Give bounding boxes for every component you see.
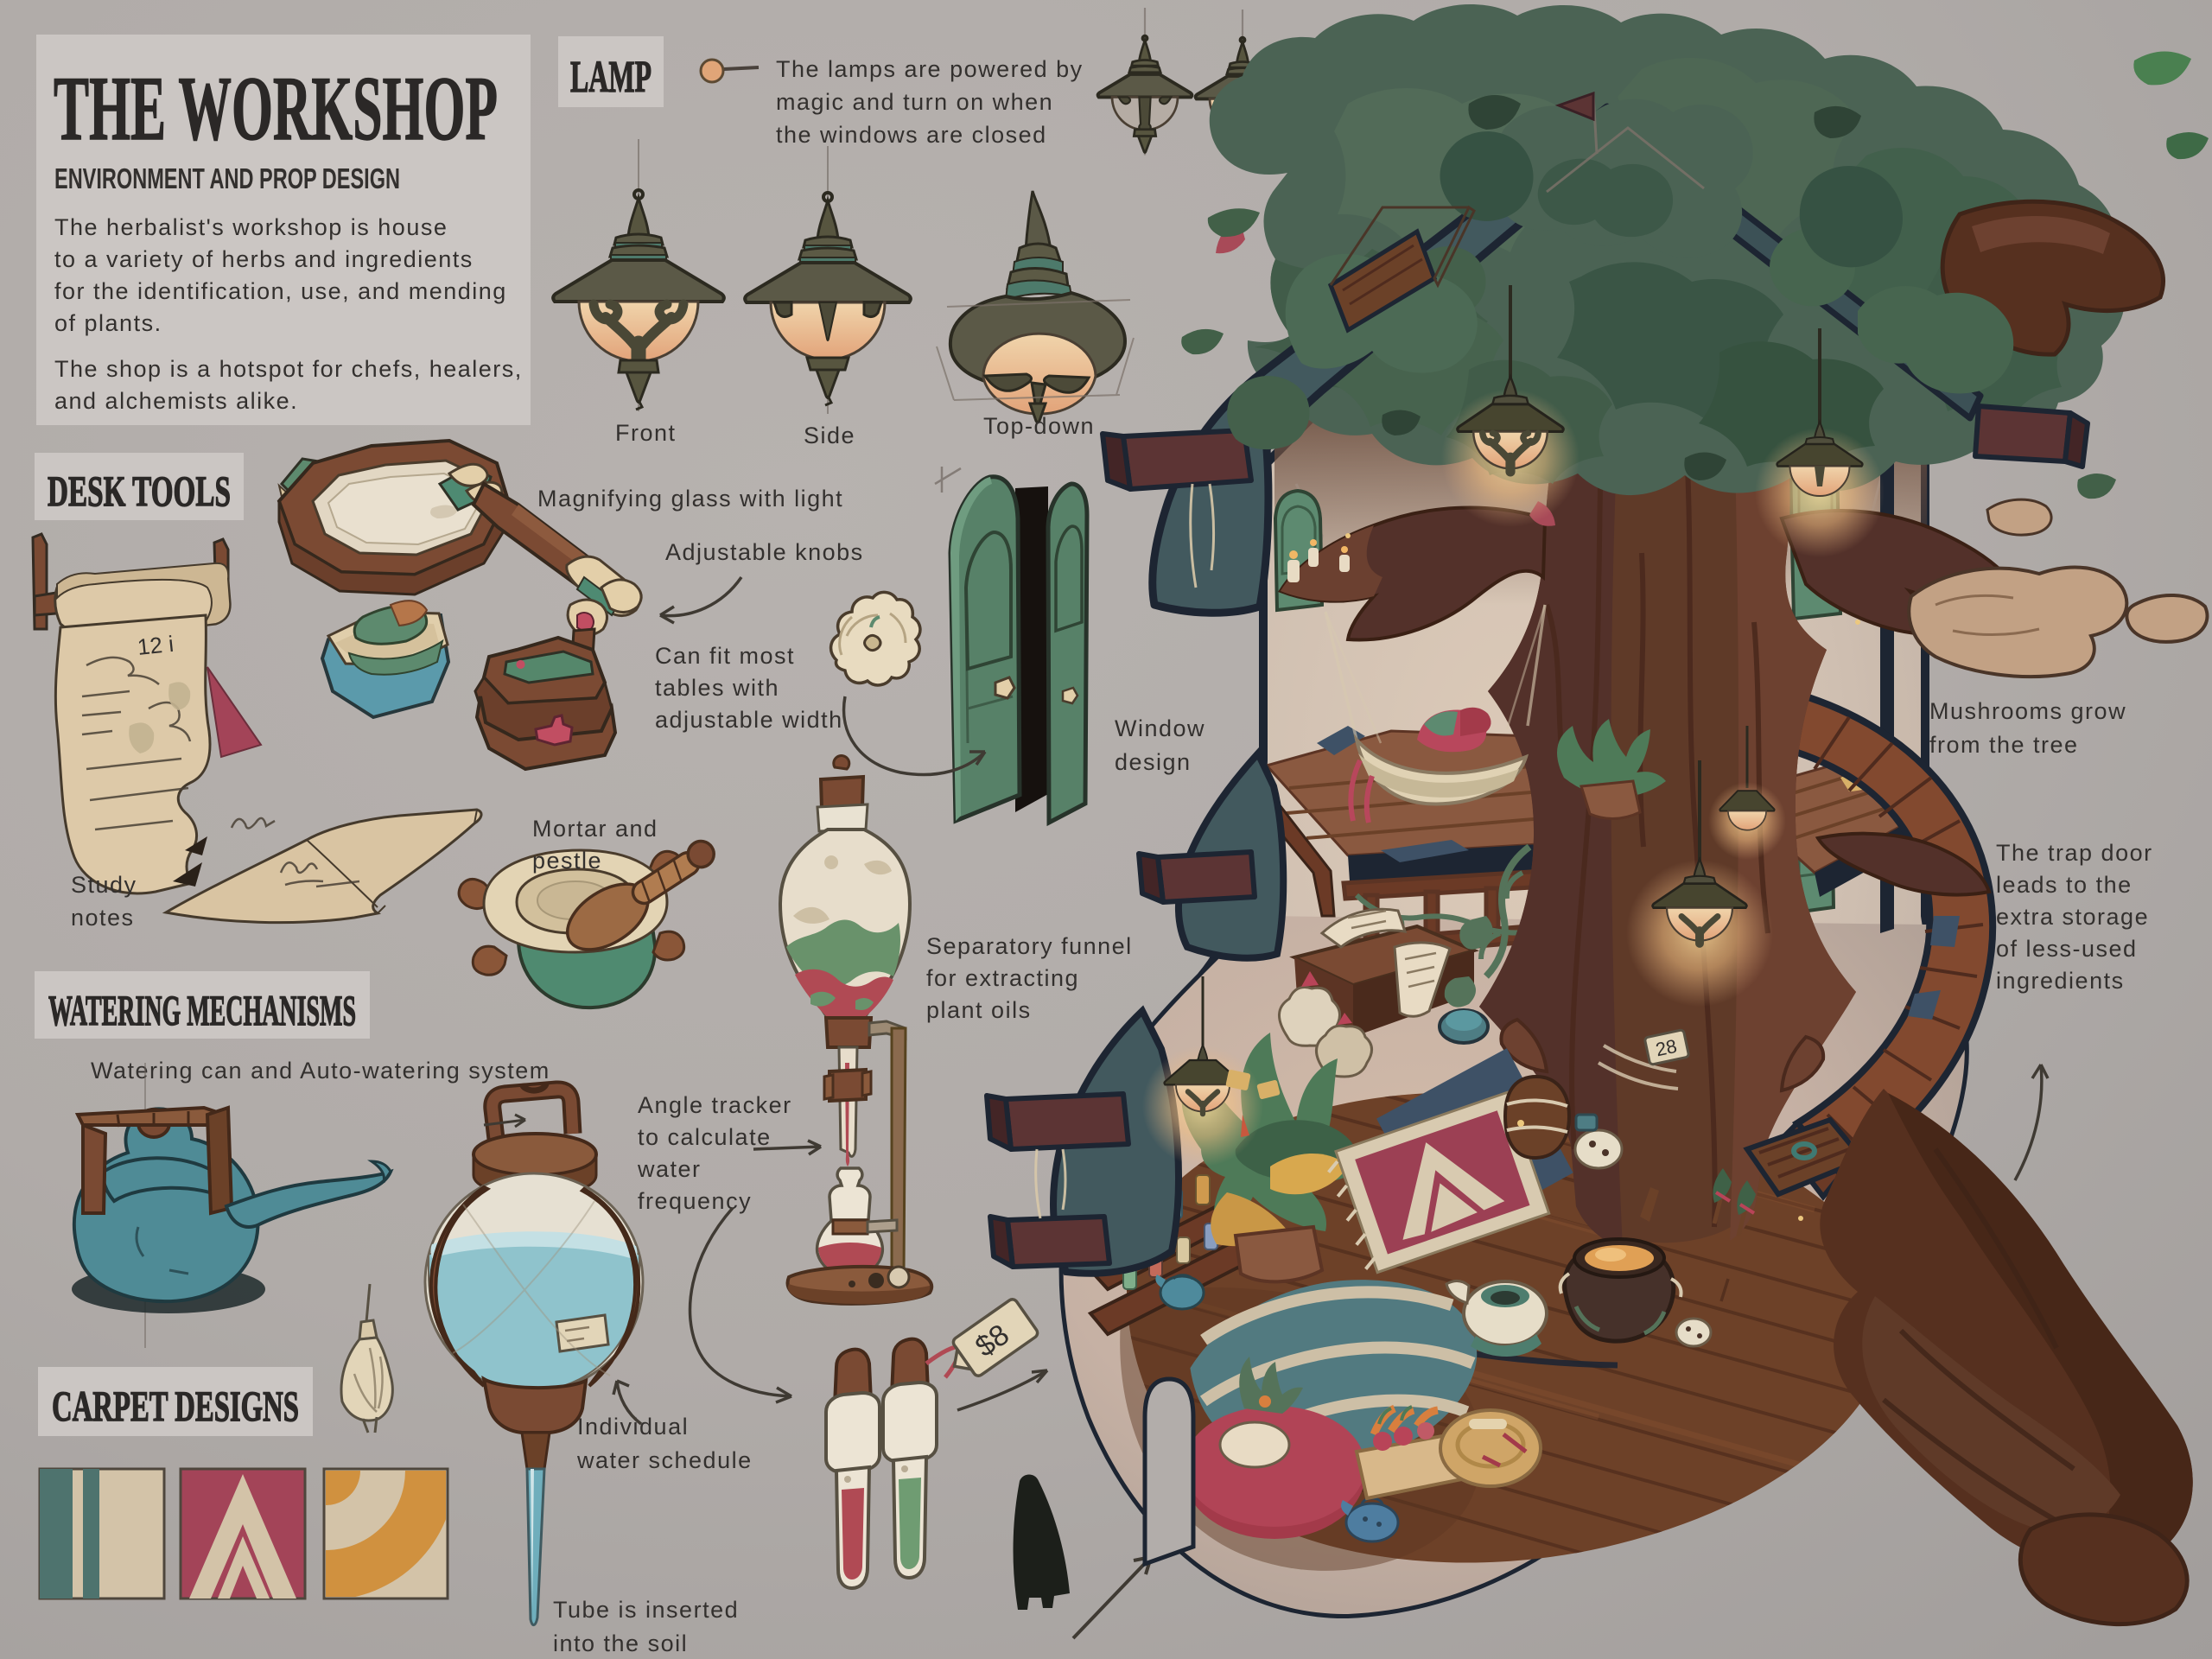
- svg-text:The lamps are powered by: The lamps are powered by: [776, 56, 1084, 82]
- svg-text:28: 28: [1654, 1035, 1679, 1061]
- svg-text:for extracting: for extracting: [926, 965, 1079, 991]
- svg-text:adjustable width: adjustable width: [655, 707, 843, 733]
- svg-text:Front: Front: [615, 420, 677, 446]
- svg-text:to a variety of herbs and ingr: to a variety of herbs and ingredients: [54, 246, 474, 272]
- svg-text:The herbalist's workshop is ho: The herbalist's workshop is house: [54, 214, 448, 240]
- svg-text:Mortar and: Mortar and: [532, 816, 658, 842]
- svg-text:for the identification, use, a: for the identification, use, and mending: [54, 278, 507, 304]
- svg-text:Study: Study: [71, 872, 137, 898]
- svg-text:into the soil: into the soil: [553, 1630, 688, 1656]
- svg-text:leads to the: leads to the: [1996, 872, 2133, 898]
- svg-text:of less-used: of less-used: [1996, 936, 2138, 962]
- svg-text:Side: Side: [804, 423, 855, 448]
- svg-text:extra storage: extra storage: [1996, 904, 2149, 930]
- svg-text:Watering can and Auto-watering: Watering can and Auto-watering system: [91, 1058, 550, 1084]
- svg-text:of plants.: of plants.: [54, 310, 162, 336]
- svg-text:from the tree: from the tree: [1929, 732, 2079, 758]
- svg-text:12 i: 12 i: [136, 631, 175, 660]
- svg-text:Top-down: Top-down: [983, 413, 1095, 439]
- svg-text:Tube is inserted: Tube is inserted: [553, 1597, 739, 1623]
- svg-text:DESK TOOLS: DESK TOOLS: [48, 467, 231, 515]
- svg-text:Adjustable knobs: Adjustable knobs: [665, 539, 864, 565]
- svg-text:Window: Window: [1115, 715, 1205, 741]
- svg-text:Can fit most: Can fit most: [655, 643, 795, 669]
- svg-text:The shop is a hotspot for chef: The shop is a hotspot for chefs, healers…: [54, 356, 523, 382]
- svg-text:ingredients: ingredients: [1996, 968, 2125, 994]
- svg-text:CARPET DESIGNS: CARPET DESIGNS: [52, 1382, 299, 1430]
- svg-text:LAMP: LAMP: [570, 53, 652, 102]
- svg-text:water schedule: water schedule: [576, 1447, 753, 1473]
- svg-text:Separatory funnel: Separatory funnel: [926, 933, 1133, 959]
- svg-text:ENVIRONMENT AND PROP DESIGN: ENVIRONMENT AND PROP DESIGN: [54, 162, 400, 194]
- svg-text:WATERING MECHANISMS: WATERING MECHANISMS: [48, 986, 356, 1034]
- svg-text:Magnifying glass with light: Magnifying glass with light: [537, 486, 843, 512]
- svg-text:to calculate: to calculate: [638, 1124, 772, 1150]
- svg-text:the windows are closed: the windows are closed: [776, 122, 1047, 148]
- svg-text:frequency: frequency: [638, 1188, 752, 1214]
- svg-text:THE WORKSHOP: THE WORKSHOP: [54, 58, 498, 159]
- svg-text:plant oils: plant oils: [926, 997, 1032, 1023]
- svg-text:design: design: [1115, 749, 1192, 775]
- svg-text:Angle tracker: Angle tracker: [638, 1092, 792, 1118]
- svg-text:Mushrooms grow: Mushrooms grow: [1929, 698, 2126, 724]
- svg-text:tables with: tables with: [655, 675, 779, 701]
- svg-text:pestle: pestle: [532, 848, 602, 874]
- svg-text:water: water: [637, 1156, 702, 1182]
- svg-text:magic and turn on when: magic and turn on when: [776, 89, 1053, 115]
- svg-text:The trap door: The trap door: [1996, 840, 2153, 866]
- svg-text:notes: notes: [71, 905, 135, 931]
- svg-text:and alchemists alike.: and alchemists alike.: [54, 388, 298, 414]
